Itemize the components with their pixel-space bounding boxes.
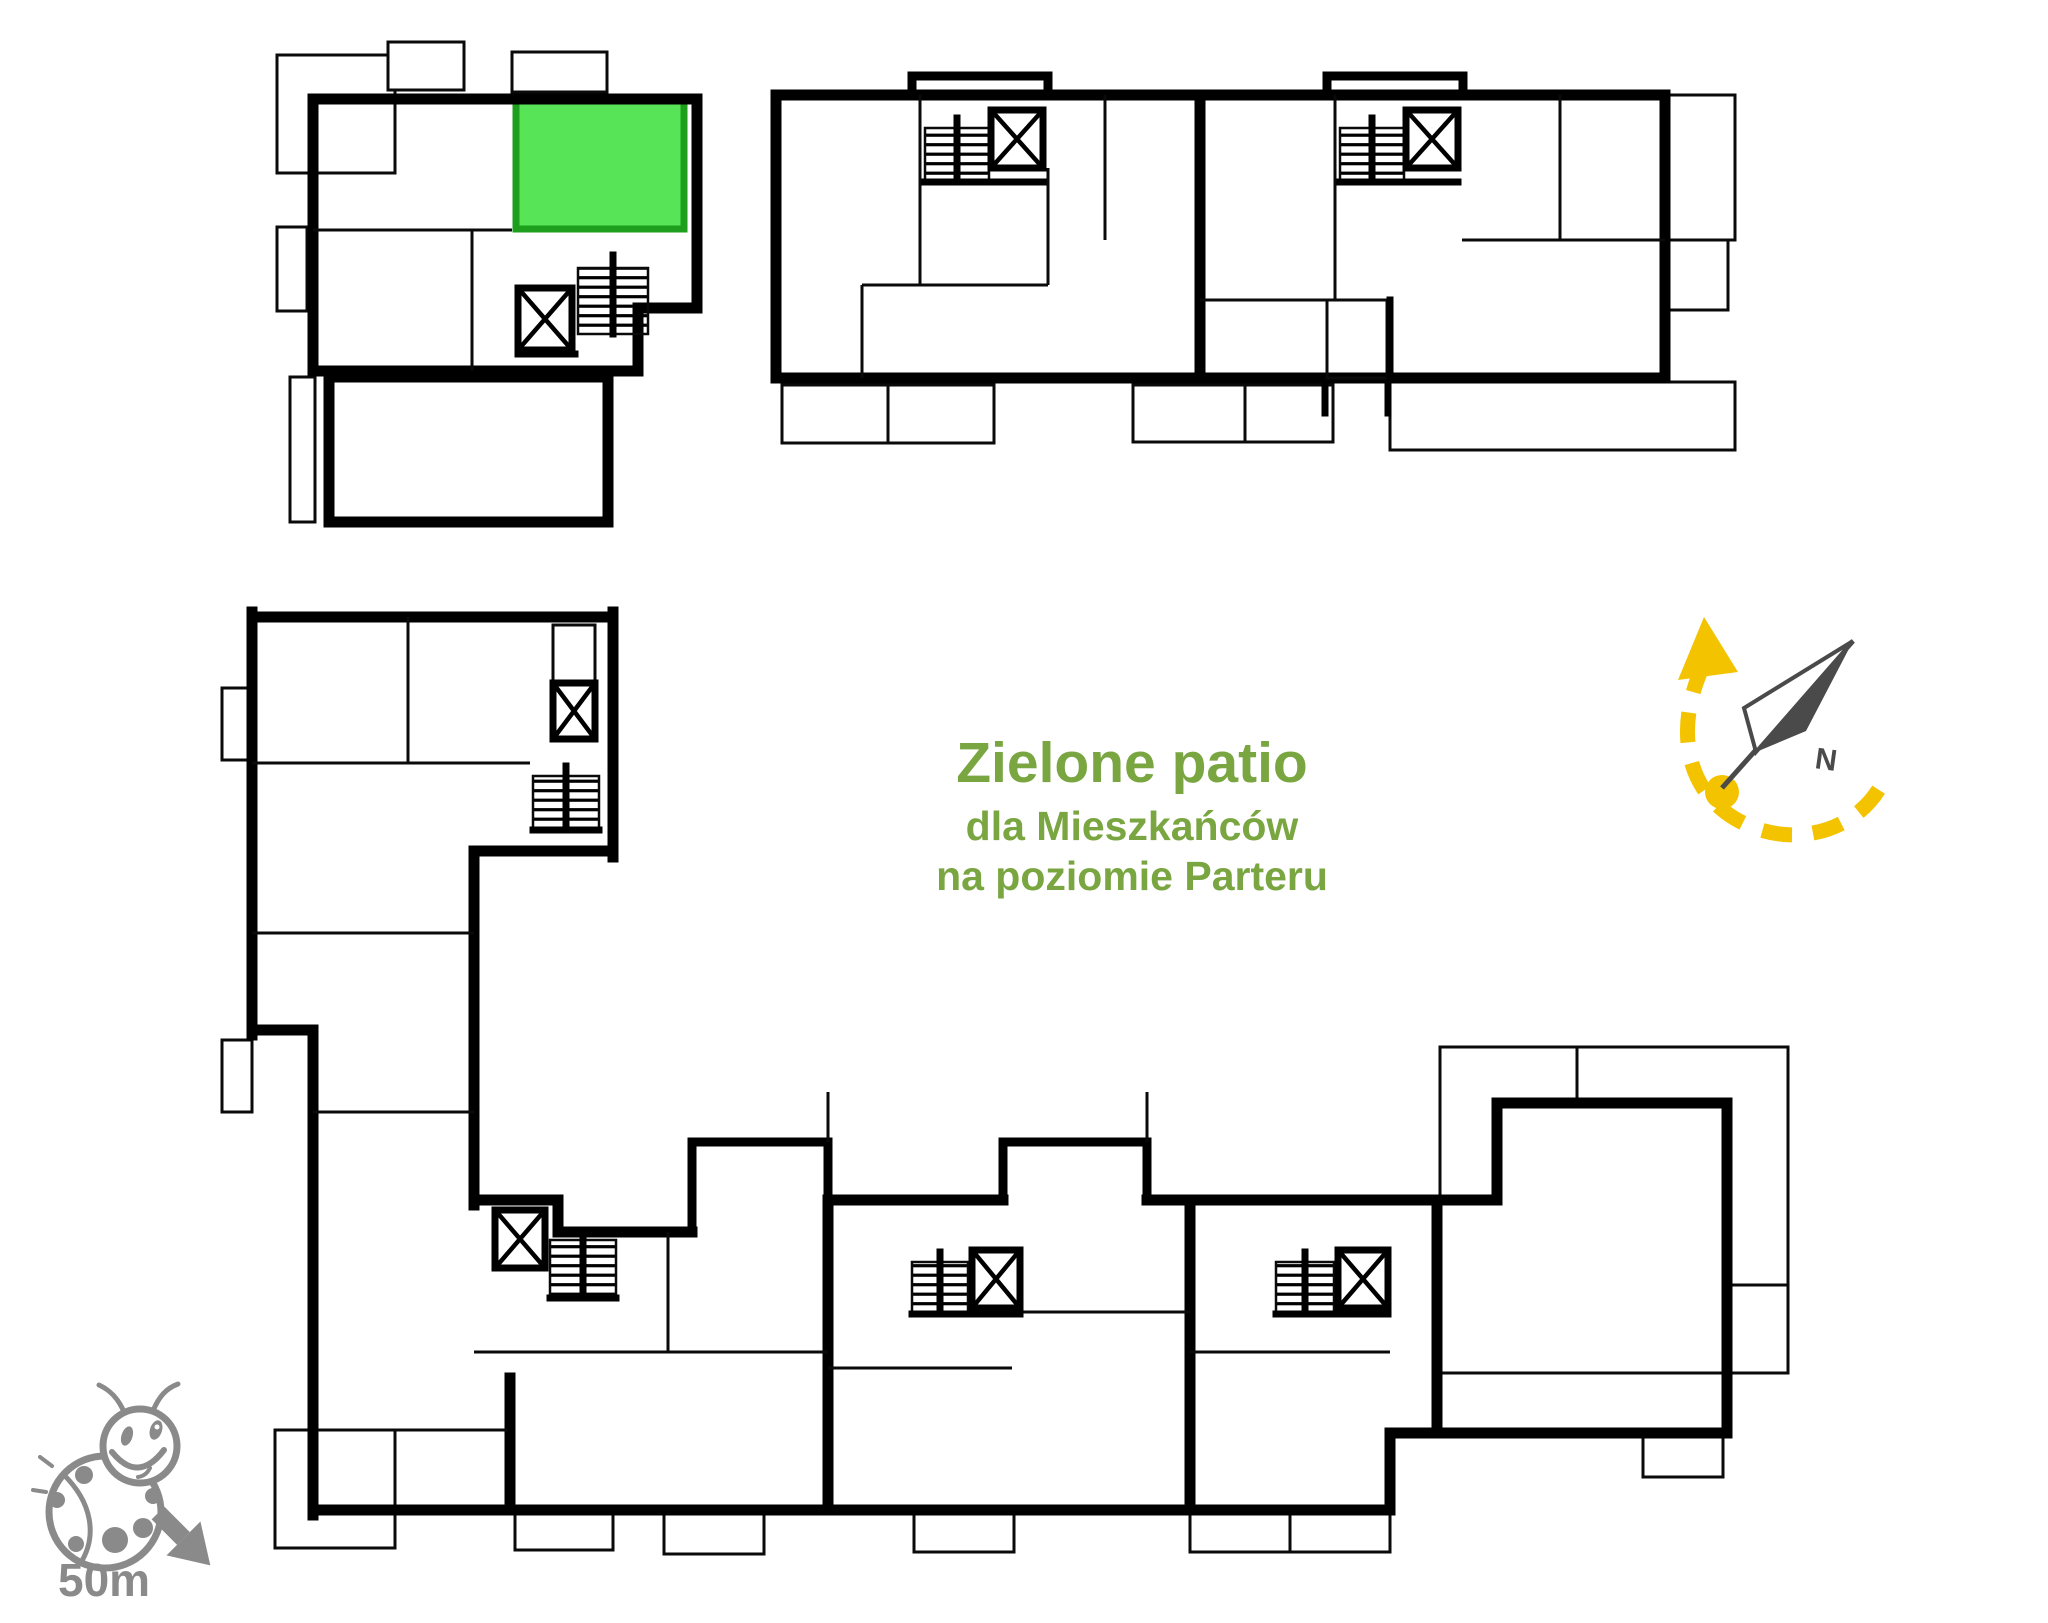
stair-bump: [692, 1142, 828, 1237]
balcony: [1133, 385, 1245, 442]
interior-wall: [313, 230, 512, 371]
balcony: [1665, 240, 1728, 310]
stair-core: [518, 255, 648, 354]
balcony: [1665, 95, 1735, 240]
balcony: [275, 1430, 395, 1548]
balcony: [888, 385, 994, 443]
outer-wall: [776, 95, 1665, 378]
scale-label: 50m: [58, 1554, 150, 1606]
stair-core: [533, 683, 599, 830]
floor-plan-canvas: Zielone patio dla Mieszkańców na poziomi…: [0, 0, 2048, 1623]
top-left-building: [277, 42, 697, 522]
patio-subtitle-1: dla Mieszkańców: [966, 803, 1299, 849]
scale-indicator: 50m: [33, 1384, 227, 1606]
stairs-icon: [1276, 1262, 1303, 1312]
highlighted-unit[interactable]: [516, 99, 684, 229]
balcony: [222, 1040, 252, 1112]
outer-wall: [1437, 1103, 1727, 1433]
patio-title: Zielone patio: [956, 731, 1308, 795]
compass-arrowhead: [1678, 617, 1738, 680]
terrace: [1390, 382, 1735, 450]
balcony: [512, 52, 607, 92]
stair-core: [925, 110, 1043, 182]
patio-label: Zielone patio dla Mieszkańców na poziomi…: [936, 731, 1328, 899]
balcony: [914, 1510, 1014, 1552]
compass-dot: [1705, 775, 1739, 809]
ladybug-icon: [33, 1384, 178, 1568]
outer-wall: [329, 377, 608, 522]
compass-icon: N: [1678, 617, 1884, 835]
terrace: [1440, 1047, 1788, 1373]
outer-wall: [252, 612, 613, 1515]
balcony: [664, 1510, 764, 1554]
stairs-icon: [533, 776, 564, 828]
balcony: [782, 385, 888, 443]
north-needle-light: [1744, 641, 1853, 752]
stairs-icon: [550, 1240, 581, 1296]
balcony: [290, 377, 315, 522]
stair-core: [1276, 1250, 1388, 1314]
stairs-icon: [1340, 128, 1370, 182]
balcony: [1643, 1433, 1723, 1477]
balcony: [277, 227, 307, 311]
north-label: N: [1813, 742, 1839, 778]
balcony: [388, 42, 464, 90]
stair-core: [912, 1250, 1020, 1314]
balcony: [277, 55, 395, 173]
outer-wall: [313, 1200, 1437, 1510]
balcony: [515, 1510, 613, 1550]
patio-subtitle-2: na poziomie Parteru: [936, 853, 1328, 899]
stairs-icon: [925, 128, 955, 182]
stair-core: [1340, 110, 1458, 182]
top-right-building: [776, 76, 1735, 450]
stairs-icon: [578, 268, 611, 334]
stair-bump: [1003, 1142, 1147, 1200]
stairs-icon: [912, 1262, 938, 1312]
balcony: [1245, 385, 1333, 442]
